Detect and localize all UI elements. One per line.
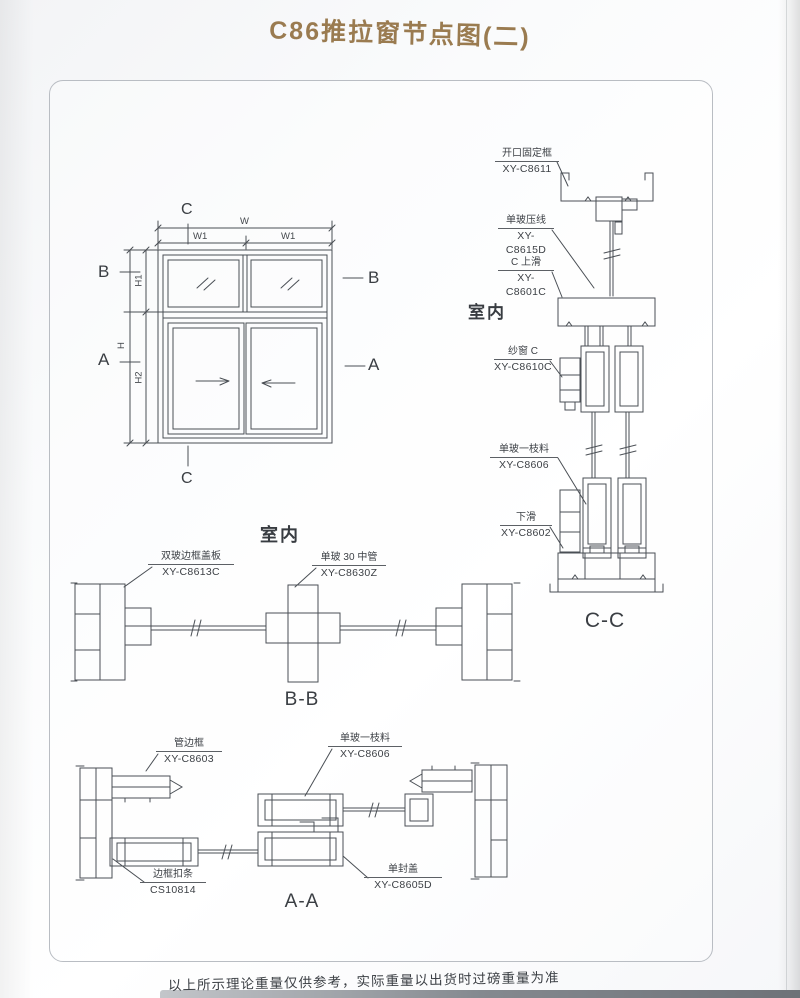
callout-cc-sash-profile-code: XY-C8606 <box>490 458 558 473</box>
callout-end-cap-code: XY-C8605D <box>364 878 442 893</box>
dim-label-h1: H1 <box>134 274 145 286</box>
callout-frame-clip: 边框扣条 CS10814 <box>140 868 206 898</box>
page-title: C86推拉窗节点图(二) <box>0 3 800 61</box>
callout-mid-tube-name: 单玻 30 中管 <box>312 551 386 566</box>
section-marker-a-left: A <box>98 350 109 370</box>
page-edge-line <box>786 0 787 998</box>
callout-mid-tube: 单玻 30 中管 XY-C8630Z <box>312 551 386 581</box>
section-marker-b-right: B <box>368 268 379 288</box>
callout-aa-sash-profile-code: XY-C8606 <box>328 747 402 762</box>
callout-aa-sash-profile-name: 单玻一枝料 <box>328 732 402 747</box>
callout-bottom-slide: 下滑 XY-C8602 <box>500 511 552 541</box>
page-left-shadow <box>0 0 34 998</box>
section-marker-a-right: A <box>368 355 379 375</box>
callout-glass-bead-code: XY-C8615D <box>498 229 554 257</box>
callout-screen-name: 纱窗 C <box>494 345 552 360</box>
caption-cc: C-C <box>575 609 635 633</box>
callout-cc-sash-profile: 单玻一枝料 XY-C8606 <box>490 443 558 473</box>
callout-tube-frame-name: 管边框 <box>156 737 222 752</box>
callout-cover-plate: 双玻边框盖板 XY-C8613C <box>148 550 234 580</box>
dim-label-h: H <box>116 342 127 349</box>
section-marker-c-top: C <box>181 201 193 219</box>
drawing-sheet-border <box>49 80 713 962</box>
callout-cc-sash-profile-name: 单玻一枝料 <box>490 443 558 458</box>
caption-bb: B-B <box>272 689 332 711</box>
callout-tube-frame: 管边框 XY-C8603 <box>156 737 222 767</box>
callout-top-slide-code: XY-C8601C <box>498 271 554 299</box>
callout-cover-plate-code: XY-C8613C <box>148 565 234 580</box>
callout-screen: 纱窗 C XY-C8610C <box>494 345 552 375</box>
callout-top-slide-name: C 上滑 <box>498 256 554 271</box>
callout-top-slide: C 上滑 XY-C8601C <box>498 256 554 299</box>
caption-aa: A-A <box>272 891 332 913</box>
dim-label-w: W <box>240 216 249 227</box>
callout-fixed-frame: 开口固定框 XY-C8611 <box>495 147 559 177</box>
callout-end-cap-name: 单封盖 <box>364 863 442 878</box>
section-marker-c-bottom: C <box>181 470 193 488</box>
dim-label-w1-right: W1 <box>281 231 295 242</box>
callout-bottom-slide-name: 下滑 <box>500 511 552 526</box>
callout-glass-bead-name: 单玻压线 <box>498 214 554 229</box>
callout-mid-tube-code: XY-C8630Z <box>312 566 386 581</box>
dim-label-w1-left: W1 <box>193 231 207 242</box>
callout-cover-plate-name: 双玻边框盖板 <box>148 550 234 565</box>
callout-glass-bead: 单玻压线 XY-C8615D <box>498 214 554 257</box>
callout-frame-clip-name: 边框扣条 <box>140 868 206 883</box>
callout-tube-frame-code: XY-C8603 <box>156 752 222 767</box>
catalog-page: C86推拉窗节点图(二) <box>0 0 800 998</box>
dim-label-h2: H2 <box>134 371 145 383</box>
callout-screen-code: XY-C8610C <box>494 360 552 375</box>
callout-fixed-frame-name: 开口固定框 <box>495 147 559 162</box>
room-label-bb: 室内 <box>260 521 300 547</box>
room-label-cc: 室内 <box>468 298 506 323</box>
section-marker-b-left: B <box>98 262 109 282</box>
callout-aa-sash-profile: 单玻一枝料 XY-C8606 <box>328 732 402 762</box>
callout-frame-clip-code: CS10814 <box>140 883 206 898</box>
callout-fixed-frame-code: XY-C8611 <box>495 162 559 177</box>
page-right-shadow <box>778 0 800 998</box>
callout-bottom-slide-code: XY-C8602 <box>500 526 552 541</box>
callout-end-cap: 单封盖 XY-C8605D <box>364 863 442 893</box>
